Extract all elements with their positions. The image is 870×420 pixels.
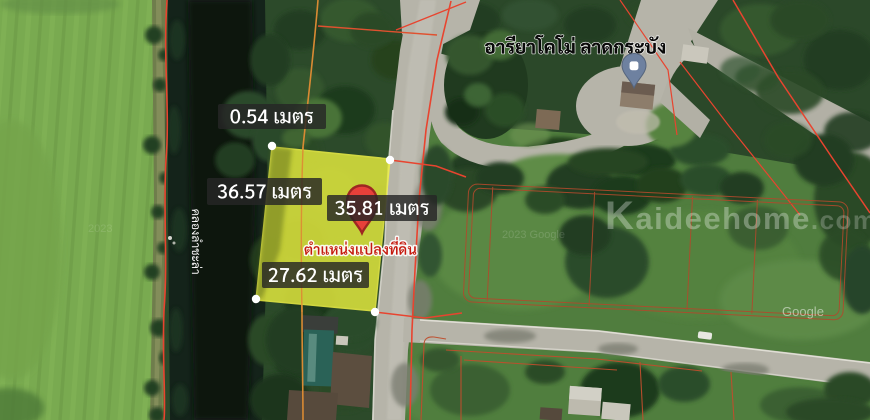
svg-text:Google: Google	[782, 304, 824, 319]
svg-text:2023 Google: 2023 Google	[502, 229, 565, 241]
svg-text:2023: 2023	[88, 223, 112, 235]
